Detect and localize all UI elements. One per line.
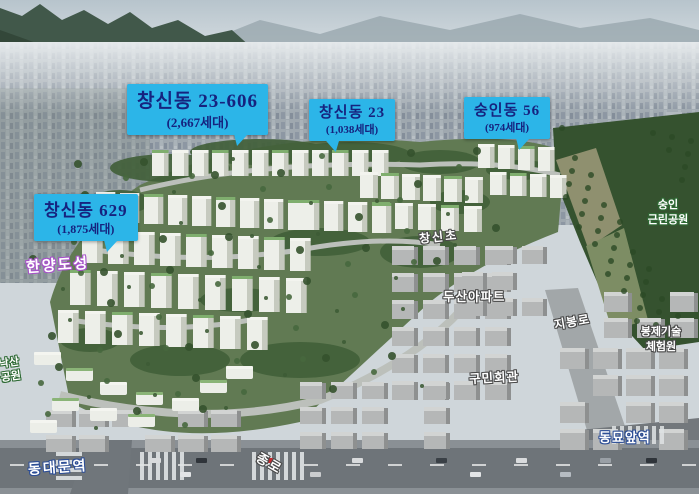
callout-title: 창신동 23-606 <box>137 86 258 113</box>
label-doosan-apartment: 두산아파트 <box>443 286 506 305</box>
label-sungin-park: 숭인 근린공원 <box>638 198 698 228</box>
callout-subtitle: (1,875세대) <box>44 220 128 237</box>
callout-title: 숭인동 56 <box>474 99 540 120</box>
label-line: 숭인 <box>638 198 698 213</box>
callout-title: 창신동 23 <box>319 101 385 122</box>
label-line: 근린공원 <box>638 213 698 228</box>
callout-title: 창신동 629 <box>44 196 128 221</box>
callout-changsin-23-606: 창신동 23-606 (2,667세대) <box>127 84 268 135</box>
callout-subtitle: (974세대) <box>474 119 540 135</box>
callout-sungin-56: 숭인동 56 (974세대) <box>464 97 550 139</box>
callout-changsin-23: 창신동 23 (1,038세대) <box>309 99 395 141</box>
label-dongdaemun-station: 동대문역 <box>27 455 88 479</box>
aerial-rendering-page: 창신동 23-606 (2,667세대) 창신동 23 (1,038세대) 숭인… <box>0 0 699 494</box>
label-hanyang-fortress: 한양도성 <box>25 252 90 277</box>
label-dongmyo-station: 동묘앞역 <box>599 427 651 446</box>
label-line: 봉제기술 <box>628 325 694 340</box>
label-naksan-park: 낙산 공원 <box>0 354 26 386</box>
label-sewing-center: 봉제기술 체험원 <box>628 325 694 355</box>
label-line: 체험원 <box>628 340 694 355</box>
label-gumin-hall: 구민회관 <box>469 366 520 388</box>
callout-subtitle: (1,038세대) <box>319 121 385 137</box>
callout-changsin-629: 창신동 629 (1,875세대) <box>34 194 138 241</box>
callout-subtitle: (2,667세대) <box>137 112 258 131</box>
